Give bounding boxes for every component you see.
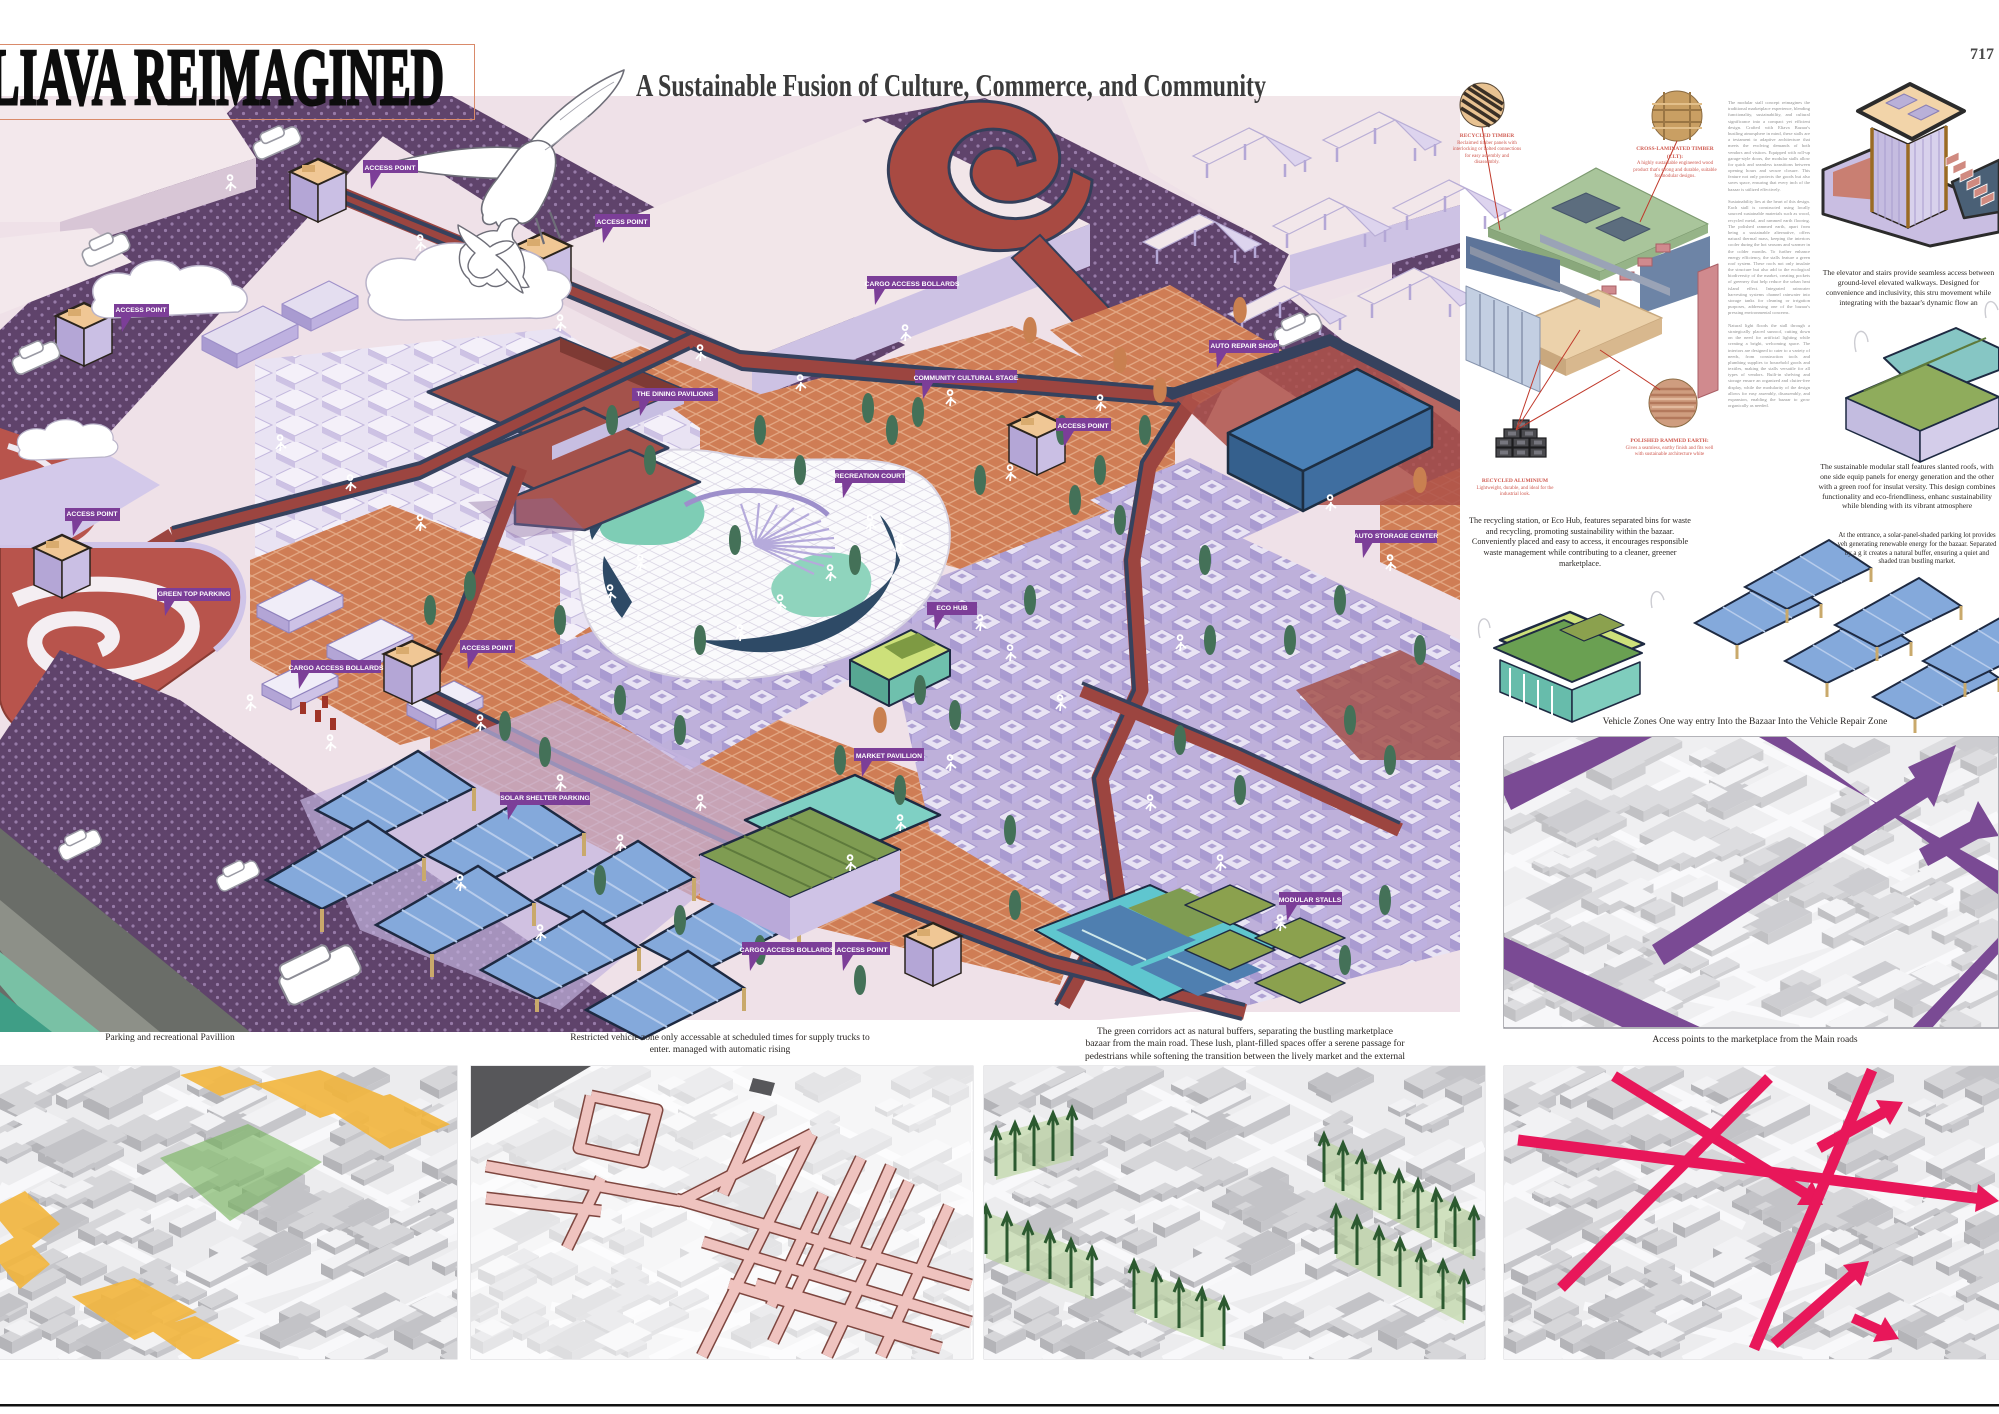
svg-text:COMMUNITY CULTURAL STAGE: COMMUNITY CULTURAL STAGE <box>914 375 1019 382</box>
svg-text:ACCESS POINT: ACCESS POINT <box>67 511 119 518</box>
svg-text:AUTO STORAGE CENTER: AUTO STORAGE CENTER <box>1354 533 1438 540</box>
svg-text:THE DINING PAVILIONS: THE DINING PAVILIONS <box>637 391 714 398</box>
svg-text:ECO HUB: ECO HUB <box>936 605 967 612</box>
svg-text:ACCESS POINT: ACCESS POINT <box>837 947 889 954</box>
svg-text:GREEN TOP PARKING: GREEN TOP PARKING <box>158 591 231 598</box>
svg-text:ACCESS POINT: ACCESS POINT <box>1058 423 1110 430</box>
svg-text:ACCESS POINT: ACCESS POINT <box>597 219 649 226</box>
svg-text:CARGO ACCESS BOLLARDS: CARGO ACCESS BOLLARDS <box>865 281 960 288</box>
svg-text:CARGO ACCESS BOLLARDS: CARGO ACCESS BOLLARDS <box>289 665 384 672</box>
svg-text:CARGO ACCESS BOLLARDS: CARGO ACCESS BOLLARDS <box>740 947 835 954</box>
svg-text:SOLAR SHELTER PARKING: SOLAR SHELTER PARKING <box>500 795 590 802</box>
svg-text:ACCESS POINT: ACCESS POINT <box>462 645 514 652</box>
svg-text:MARKET PAVILLION: MARKET PAVILLION <box>856 753 922 760</box>
svg-text:ACCESS POINT: ACCESS POINT <box>116 307 168 314</box>
svg-text:RECREATION COURT: RECREATION COURT <box>835 473 906 480</box>
svg-text:ELIAVA REIMAGINED: ELIAVA REIMAGINED <box>0 34 444 122</box>
svg-text:MODULAR STALLS: MODULAR STALLS <box>1279 897 1342 904</box>
svg-text:AUTO REPAIR SHOP: AUTO REPAIR SHOP <box>1210 343 1278 350</box>
svg-text:A Sustainable Fusion of Cultur: A Sustainable Fusion of Culture, Commerc… <box>636 67 1266 103</box>
svg-text:ACCESS POINT: ACCESS POINT <box>365 165 417 172</box>
